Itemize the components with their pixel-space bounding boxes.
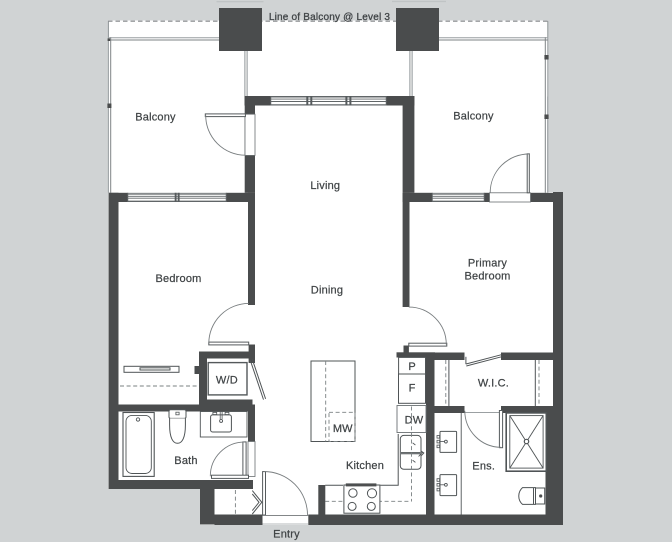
svg-text:MW: MW (333, 423, 353, 435)
svg-text:Balcony: Balcony (135, 111, 176, 123)
svg-text:Ens.: Ens. (472, 461, 495, 473)
svg-text:Living: Living (310, 180, 340, 192)
svg-text:Primary: Primary (468, 257, 508, 269)
svg-text:Line of Balcony @ Level 3: Line of Balcony @ Level 3 (269, 12, 391, 23)
svg-text:DW: DW (405, 415, 424, 427)
svg-text:Balcony: Balcony (453, 110, 494, 122)
svg-text:Bedroom: Bedroom (155, 273, 201, 285)
svg-text:Entry: Entry (273, 528, 300, 540)
svg-text:W.I.C.: W.I.C. (478, 377, 509, 389)
svg-text:W/D: W/D (216, 375, 238, 387)
svg-text:F: F (409, 382, 416, 394)
svg-text:Kitchen: Kitchen (346, 460, 384, 472)
svg-text:P: P (408, 361, 416, 373)
svg-text:Bedroom: Bedroom (464, 270, 510, 282)
svg-text:Bath: Bath (174, 455, 197, 467)
svg-text:Dining: Dining (311, 285, 343, 297)
